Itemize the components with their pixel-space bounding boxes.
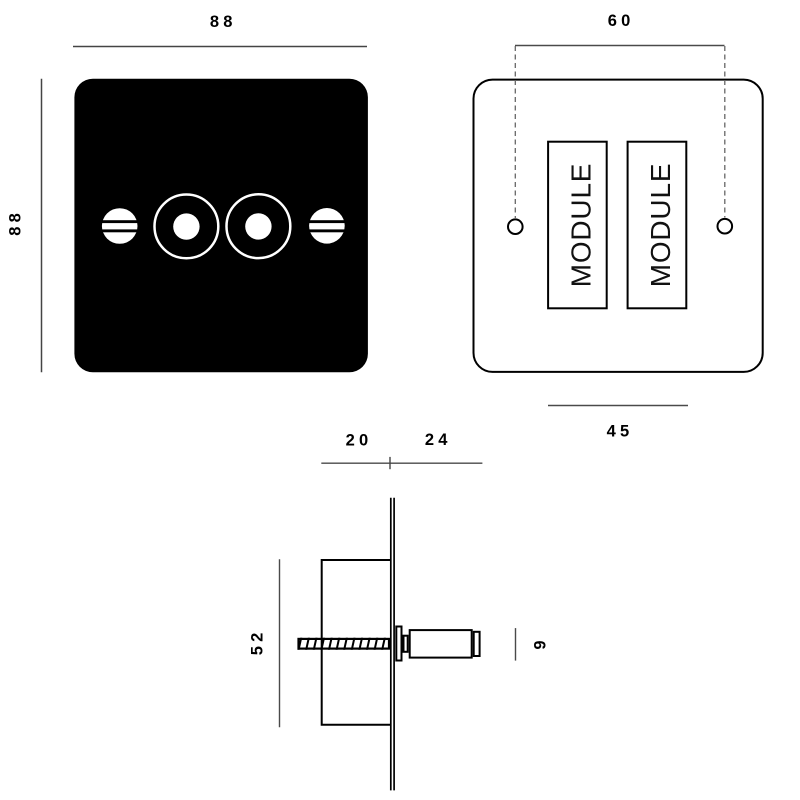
svg-text:88: 88 xyxy=(210,13,237,31)
svg-text:24: 24 xyxy=(425,431,452,449)
svg-text:MODULE: MODULE xyxy=(645,163,676,288)
svg-text:20: 20 xyxy=(346,432,373,450)
svg-text:52: 52 xyxy=(249,629,267,656)
svg-text:9: 9 xyxy=(531,636,549,649)
svg-text:MODULE: MODULE xyxy=(565,163,596,288)
svg-text:88: 88 xyxy=(7,209,25,236)
svg-text:45: 45 xyxy=(607,423,634,441)
svg-text:60: 60 xyxy=(608,12,635,30)
